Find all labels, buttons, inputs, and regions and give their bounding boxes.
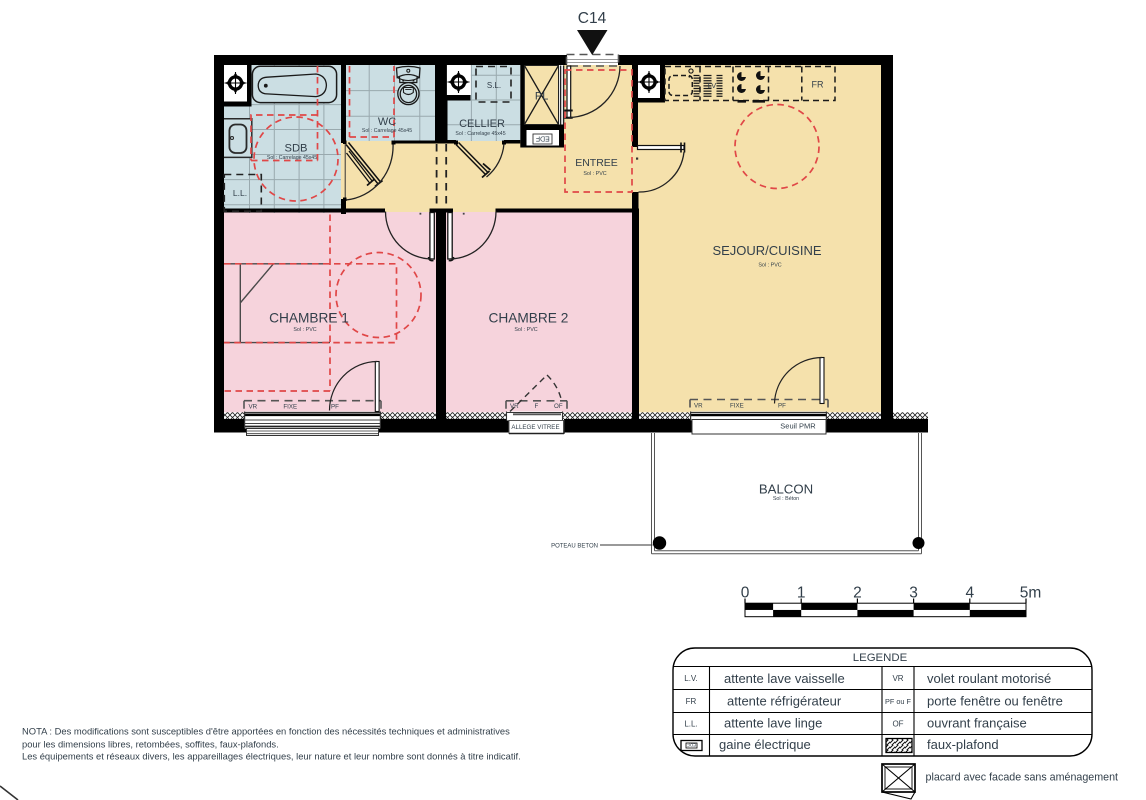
svg-text:Sol : Carrelage 45x45: Sol : Carrelage 45x45 [455, 131, 505, 137]
svg-text:L.L.: L.L. [233, 188, 247, 198]
svg-text:CELLIER: CELLIER [459, 118, 505, 130]
svg-text:FIXE: FIXE [730, 403, 744, 410]
svg-text:placard avec facade sans aména: placard avec facade sans aménagement [926, 772, 1119, 784]
svg-text:pour les dimensions libres, re: pour les dimensions libres, retombées, s… [22, 739, 279, 750]
svg-text:ENTREE: ENTREE [575, 157, 618, 169]
svg-text:VR: VR [694, 403, 703, 410]
svg-text:PL: PL [535, 91, 548, 103]
svg-text:Sol : PVC: Sol : PVC [583, 171, 606, 177]
svg-text:VR: VR [249, 403, 258, 410]
svg-text:ouvrant française: ouvrant française [927, 716, 1027, 731]
svg-text:Sol : Carrelage 45x45: Sol : Carrelage 45x45 [362, 128, 412, 134]
svg-text:PF ou F: PF ou F [885, 697, 911, 706]
svg-text:Sol : PVC: Sol : PVC [758, 263, 781, 269]
svg-text:SDB: SDB [284, 143, 307, 155]
svg-text:PF: PF [778, 403, 786, 410]
svg-text:F: F [535, 403, 539, 410]
svg-text:5m: 5m [1020, 584, 1042, 601]
svg-text:WC: WC [378, 116, 396, 128]
svg-text:C14: C14 [578, 10, 607, 27]
svg-text:porte fenêtre ou fenêtre: porte fenêtre ou fenêtre [927, 694, 1063, 709]
svg-text:Sol : Béton: Sol : Béton [773, 496, 799, 502]
svg-text:attente lave vaisselle: attente lave vaisselle [724, 671, 845, 686]
svg-text:LEGENDE: LEGENDE [853, 652, 908, 664]
svg-text:attente lave linge: attente lave linge [724, 716, 822, 731]
svg-text:POTEAU BETON: POTEAU BETON [551, 543, 598, 549]
svg-text:OF: OF [554, 403, 563, 410]
svg-text:faux-plafond: faux-plafond [927, 737, 999, 752]
svg-text:PF: PF [331, 403, 339, 410]
svg-text:L.L.: L.L. [684, 720, 697, 729]
svg-text:NOTA : Des modifications sont: NOTA : Des modifications sont susceptibl… [22, 726, 510, 737]
svg-text:OF: OF [892, 720, 903, 729]
svg-text:Seuil PMR: Seuil PMR [780, 422, 816, 431]
svg-text:gaine électrique: gaine électrique [719, 737, 811, 752]
svg-text:BALCON: BALCON [759, 482, 813, 497]
svg-text:SEJOUR/CUISINE: SEJOUR/CUISINE [712, 243, 821, 258]
svg-text:FR: FR [686, 697, 697, 706]
svg-text:CHAMBRE 2: CHAMBRE 2 [488, 311, 568, 326]
svg-text:EDF: EDF [687, 743, 696, 748]
svg-text:volet roulant motorisé: volet roulant motorisé [927, 671, 1051, 686]
svg-text:Sol : Carrelage 45x45: Sol : Carrelage 45x45 [267, 155, 317, 161]
svg-text:FR: FR [812, 80, 824, 90]
svg-text:ALLEGE VITREE: ALLEGE VITREE [511, 424, 559, 431]
svg-text:attente réfrigérateur: attente réfrigérateur [727, 694, 842, 709]
svg-text:LV: LV [708, 81, 717, 90]
svg-text:VR: VR [892, 674, 903, 683]
svg-text:EDF: EDF [536, 135, 550, 142]
svg-text:Sol : PVC: Sol : PVC [293, 327, 316, 333]
svg-text:CHAMBRE 1: CHAMBRE 1 [269, 311, 349, 326]
svg-text:Les équipements et réseaux div: Les équipements et réseaux divers, les a… [22, 751, 521, 762]
svg-text:Sol : PVC: Sol : PVC [514, 327, 537, 333]
svg-text:S.L.: S.L. [487, 81, 501, 90]
svg-text:FIXE: FIXE [283, 403, 297, 410]
svg-text:L.V.: L.V. [684, 674, 698, 683]
